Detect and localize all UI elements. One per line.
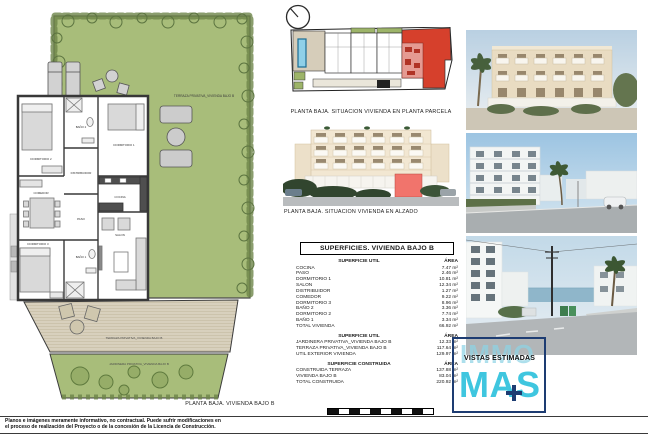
footer-rule-top [0, 416, 648, 417]
elevation-drawing [283, 118, 459, 206]
table-section-construida: SUPERFICIE CONSTRUIDA ÁREA CONSTRUIDA TE… [296, 362, 458, 386]
bed-icon [20, 248, 50, 292]
svg-text:SALON: SALON [115, 233, 125, 237]
wardrobe-icon [42, 166, 62, 173]
photo-building-render [466, 30, 637, 130]
tv-unit-icon [99, 246, 102, 270]
estimated-views-label: VISTAS ESTIMADAS [464, 355, 535, 362]
elevation-caption: PLANTA BAJA. SITUACION VIVIENDA EN ALZAD… [284, 209, 418, 215]
pool [298, 39, 306, 67]
site-plan-caption: PLANTA BAJA. SITUACION VIVIENDA EN PLANT… [283, 109, 459, 115]
parking-grille [377, 80, 390, 88]
svg-text:DORMITORIO 3: DORMITORIO 3 [27, 242, 49, 246]
garden-label: TERRAZA PRIVATIVA_VIVIENDA BAJO B [174, 94, 234, 98]
svg-text:BAÑO 2: BAÑO 2 [76, 124, 87, 129]
table-row: TOTAL CONSTRUIDA 220.92 m² [296, 380, 458, 386]
sink-icon [86, 268, 96, 273]
plan-sheet: TERRAZA PRIVATIVA_VIVIENDA BAJO B [0, 0, 648, 439]
section-rows: CONSTRUIDA TERRAZA 137.88 m² VIVIENDA BA… [296, 368, 458, 386]
svg-text:DORMITORIO 2: DORMITORIO 2 [30, 157, 52, 161]
logo-mas-text: MAS [459, 367, 541, 403]
toilet-icon [89, 250, 95, 259]
waste-bin [560, 306, 568, 316]
svg-text:DISTRIBUIDOR: DISTRIBUIDOR [71, 171, 92, 175]
waste-bin [569, 306, 576, 316]
footer-rule-bottom [0, 433, 648, 434]
section-rows: JARDINERA PRIVATIVA_VIVIENDA BAJO B 12.3… [296, 340, 458, 358]
deck-terrace [24, 300, 238, 352]
surfaces-table: SUPERFICIES. VIVIENDA BAJO B SUPERFICIE … [296, 242, 458, 386]
table-row: TOTAL VIVIENDA 66.92 m² [296, 324, 458, 330]
car-icon [285, 189, 302, 196]
scale-bar [327, 408, 434, 415]
car-icon [522, 308, 536, 316]
svg-text:BAÑO 1: BAÑO 1 [76, 254, 87, 259]
svg-text:DORMITORIO 1: DORMITORIO 1 [113, 143, 135, 147]
svg-text:COCINA: COCINA [114, 195, 125, 199]
site-plan-drawing [283, 27, 459, 103]
section-rows: COCINA 7.47 m² PASO 2.46 m² DORMITORIO 1… [296, 266, 458, 330]
unit-highlight-rect [395, 174, 422, 197]
floor-plan-caption: PLANTA BAJA. VIVIENDA BAJO B [120, 401, 340, 407]
svg-text:PASO: PASO [77, 217, 86, 221]
sink-icon [82, 138, 94, 143]
svg-text:COMEDOR: COMEDOR [33, 191, 48, 195]
immomas-logo: IMMO VISTAS ESTIMADAS MAS [452, 337, 546, 413]
photo-street-view [466, 133, 637, 233]
floor-plan-drawing: TERRAZA PRIVATIVA_VIVIENDA BAJO B [8, 6, 272, 402]
sideboard-icon [20, 180, 42, 187]
bed-icon [22, 104, 52, 150]
table-section-exterior: SUPERFICIE UTIL ÁREA JARDINERA PRIVATIVA… [296, 334, 458, 358]
car-icon [440, 189, 456, 196]
bed-icon [108, 104, 144, 130]
wardrobe-icon [50, 292, 63, 298]
table-row: UTIL EXTERIOR VIVIENDA 129.97 m² [296, 352, 458, 358]
disclaimer-text: Planos e imágenes meramente informativo,… [5, 418, 221, 431]
dwelling-units [325, 33, 402, 73]
deck-label: TERRAZA PRIVATIVA_VIVIENDA BAJO B [106, 336, 163, 340]
surfaces-table-title: SUPERFICIES. VIVIENDA BAJO B [300, 242, 454, 255]
planter-label: JARDINERA PRIVATIVA_VIVIENDA BAJO B [109, 362, 169, 366]
table-section-util: SUPERFICIE UTIL ÁREA COCINA 7.47 m² PASO… [296, 259, 458, 330]
shower-icon [66, 282, 84, 298]
plus-icon [506, 385, 522, 401]
shower-icon [66, 98, 82, 112]
road [283, 197, 459, 206]
toilet-icon [87, 118, 93, 127]
